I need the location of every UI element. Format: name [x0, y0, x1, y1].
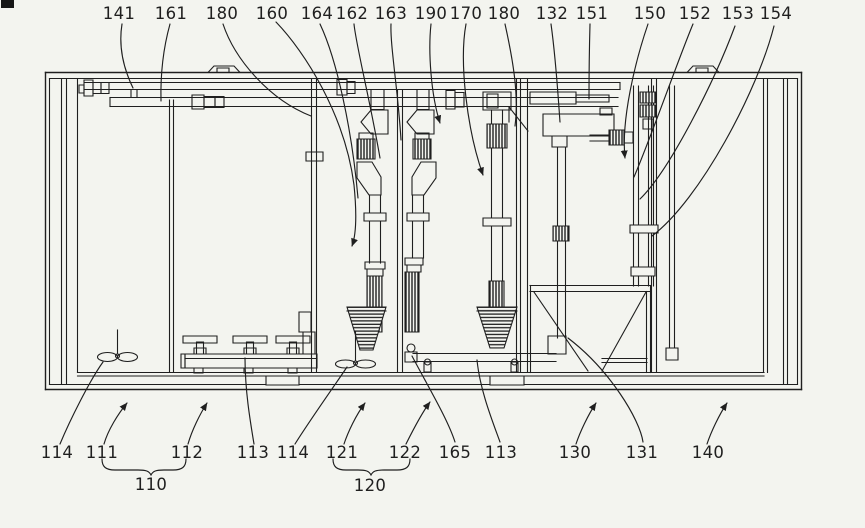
pipe-clamp [631, 267, 655, 276]
ref-label-120: 120 [354, 476, 386, 495]
ref-label-161: 161 [155, 4, 187, 23]
ref-label-180-left: 180 [206, 4, 238, 23]
ref-label-114-left: 114 [41, 443, 73, 462]
ref-label-163: 163 [375, 4, 407, 23]
ref-label-130: 130 [559, 443, 591, 462]
ref-label-160: 160 [256, 4, 288, 23]
ref-label-162: 162 [336, 4, 368, 23]
pipe-clamp [483, 218, 511, 226]
pump-coupling [413, 139, 431, 159]
pump-coupling [487, 124, 507, 148]
ref-label-154: 154 [760, 4, 792, 23]
ref-label-113-right: 113 [485, 443, 517, 462]
ref-label-151: 151 [576, 4, 608, 23]
ref-label-190: 190 [415, 4, 447, 23]
ref-label-122: 122 [389, 443, 421, 462]
floor-support-block [490, 376, 524, 385]
patent-figure: 141 161 180 160 164 162 163 190 170 180 … [0, 0, 865, 528]
ref-label-131: 131 [626, 443, 658, 462]
scan-artifact [1, 0, 14, 8]
ref-label-114-mid: 114 [277, 443, 309, 462]
ref-label-170: 170 [450, 4, 482, 23]
screenshot-root: 141 161 180 160 164 162 163 190 170 180 … [0, 0, 865, 528]
floor-support-block [266, 376, 299, 385]
figure-background [0, 0, 865, 528]
pipe-coupling [553, 226, 569, 241]
ref-label-164: 164 [301, 4, 333, 23]
pipe-clamp [630, 225, 658, 233]
ref-label-152: 152 [679, 4, 711, 23]
ref-label-121: 121 [326, 443, 358, 462]
ref-label-132: 132 [536, 4, 568, 23]
pipe-clamp [407, 213, 429, 221]
ref-label-113-left: 113 [237, 443, 269, 462]
ref-label-140: 140 [692, 443, 724, 462]
ref-label-153: 153 [722, 4, 754, 23]
ref-label-141: 141 [103, 4, 135, 23]
ref-label-165: 165 [439, 443, 471, 462]
ref-label-112: 112 [171, 443, 203, 462]
suction-pipe [489, 281, 504, 309]
ref-label-111: 111 [86, 443, 118, 462]
ref-label-180-right: 180 [488, 4, 520, 23]
ref-label-110: 110 [135, 475, 167, 494]
flange-fitting [609, 130, 624, 145]
pipe-clamp [364, 213, 386, 221]
suction-pipe [405, 272, 419, 332]
ref-label-150: 150 [634, 4, 666, 23]
pump-coupling [357, 139, 375, 159]
